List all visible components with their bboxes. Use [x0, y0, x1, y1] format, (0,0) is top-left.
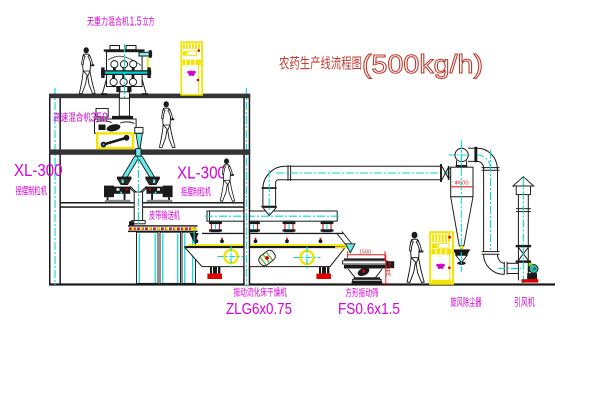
svg-text:农药生产线流程图: 农药生产线流程图 — [279, 56, 362, 73]
svg-text:无重力混合机: 无重力混合机 — [87, 15, 129, 28]
svg-text:立方: 立方 — [143, 15, 155, 28]
svg-text:振动流化床干燥机: 振动流化床干燥机 — [234, 286, 288, 299]
svg-text:ZLG6x0.75: ZLG6x0.75 — [226, 301, 292, 318]
svg-text:340: 340 — [387, 265, 393, 277]
svg-text:FS0.6x1.5: FS0.6x1.5 — [338, 301, 400, 318]
svg-text:(500kg/h): (500kg/h) — [362, 49, 483, 79]
svg-text:1500: 1500 — [359, 250, 371, 256]
svg-text:摇摆制粒机: 摇摆制粒机 — [16, 185, 48, 198]
svg-text:引风机: 引风机 — [514, 295, 535, 308]
svg-text:皮带输送机: 皮带输送机 — [149, 209, 180, 222]
svg-text:350: 350 — [91, 110, 109, 125]
svg-text:高速混合机: 高速混合机 — [53, 111, 91, 124]
svg-text:方形振动筛: 方形振动筛 — [345, 286, 378, 299]
svg-text:摇摆制粒机: 摇摆制粒机 — [181, 186, 211, 199]
svg-text:XL-300: XL-300 — [177, 163, 226, 183]
svg-text:旋风除尘器: 旋风除尘器 — [450, 295, 482, 308]
svg-text:XL-300: XL-300 — [14, 160, 63, 180]
svg-text:1.5: 1.5 — [130, 13, 142, 28]
